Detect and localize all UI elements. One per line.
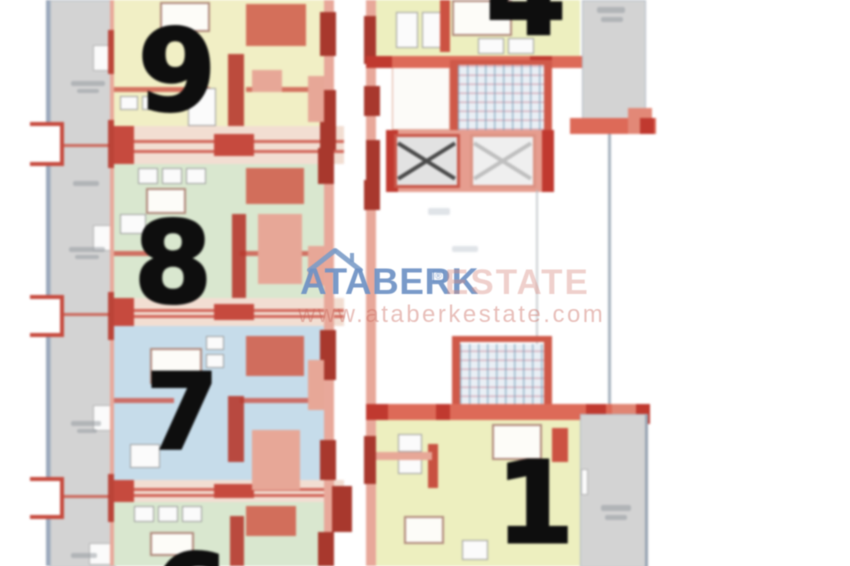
- balcony-label: [71, 81, 105, 86]
- interior-wall: [440, 0, 450, 52]
- lobby-label: [452, 246, 478, 252]
- balcony-label: [601, 17, 623, 22]
- interior-wall: [376, 452, 432, 460]
- interior-wall: [428, 444, 438, 488]
- staircase-upper: [458, 65, 544, 130]
- balcony-label: [597, 7, 625, 13]
- furniture-cabinet: [120, 96, 138, 110]
- balcony-label: [71, 553, 97, 558]
- unit-number-label: 4: [486, 0, 566, 53]
- elevator-shaft: [470, 134, 536, 188]
- furniture-cabinet: [138, 168, 158, 184]
- furniture-cabinet: [158, 506, 178, 522]
- balcony-label: [601, 505, 631, 511]
- ac-ledge: [30, 122, 64, 166]
- stair-wall: [450, 62, 458, 132]
- kitchen-block: [246, 336, 304, 376]
- furniture-cabinet: [186, 168, 206, 184]
- floorplan: 9 8 7 6 4: [0, 0, 850, 566]
- furniture-cabinet: [162, 168, 182, 184]
- wall-segment: [308, 76, 324, 122]
- top-right-balcony: [582, 0, 646, 120]
- left-wing-corridor-wall: [324, 0, 334, 566]
- plumbing-wall: [230, 516, 244, 566]
- apartment-door: [364, 86, 380, 116]
- balcony-label: [69, 247, 105, 252]
- balcony-label: [75, 255, 99, 259]
- elevator-shaft: [394, 134, 460, 188]
- wall-pillar: [640, 118, 654, 134]
- furniture-table: [252, 70, 282, 92]
- ac-ledge: [30, 295, 64, 337]
- plumbing-wall: [232, 214, 246, 298]
- plumbing-wall: [228, 396, 244, 462]
- unit-divider: [114, 480, 344, 502]
- stair-wall: [544, 340, 552, 408]
- furniture-cabinet: [462, 540, 488, 560]
- furniture-counter: [258, 214, 302, 284]
- staircase-lower: [460, 344, 544, 406]
- stair-wall: [544, 62, 552, 132]
- furniture-cabinet: [182, 506, 202, 522]
- balcony-label: [77, 429, 97, 433]
- plumbing-wall: [228, 54, 244, 126]
- kitchen-block: [246, 168, 304, 204]
- apartment-door: [318, 148, 334, 184]
- kitchen-block: [246, 506, 296, 536]
- unit-number-label: 7: [146, 360, 218, 464]
- apartment-door: [366, 140, 380, 180]
- wall-pillar: [366, 404, 388, 420]
- wall-segment: [308, 246, 324, 286]
- unit-number-label: 8: [134, 208, 212, 320]
- terrace-edge-line: [536, 190, 538, 345]
- terrace-edge-line: [608, 134, 611, 416]
- wall-pillar: [542, 130, 554, 192]
- furniture-wardrobe: [396, 12, 418, 48]
- apartment-door: [364, 180, 380, 210]
- corridor-door: [332, 486, 352, 532]
- balcony-label: [71, 421, 101, 426]
- unit-number-label: 1: [496, 448, 574, 560]
- furniture-cabinet: [398, 434, 422, 452]
- stair-wall: [452, 340, 460, 408]
- floorplan-screenshot: 9 8 7 6 4: [0, 0, 850, 566]
- ac-ledge: [30, 477, 64, 519]
- unit-number-label: 9: [138, 16, 216, 128]
- balcony-label: [73, 181, 99, 186]
- furniture-counter: [252, 430, 300, 490]
- furniture-cabinet: [134, 506, 154, 522]
- apartment-door: [320, 12, 336, 56]
- balcony-label: [77, 89, 99, 93]
- apartment-door: [318, 532, 334, 566]
- wall-pillar: [366, 56, 392, 68]
- wall-pillar: [436, 404, 450, 420]
- lobby-label: [428, 208, 450, 215]
- furniture-table: [404, 516, 444, 544]
- stair-wall: [452, 336, 552, 342]
- furniture-cabinet: [206, 336, 224, 350]
- balcony-door-opening: [581, 469, 588, 495]
- balcony-label: [605, 515, 627, 520]
- kitchen-block: [246, 4, 306, 46]
- unit-4-rooms: [392, 64, 450, 130]
- bottom-right-balcony: [580, 414, 648, 566]
- apartment-door: [320, 440, 336, 480]
- wall-segment: [308, 360, 324, 410]
- unit-number-label: 6: [152, 540, 229, 566]
